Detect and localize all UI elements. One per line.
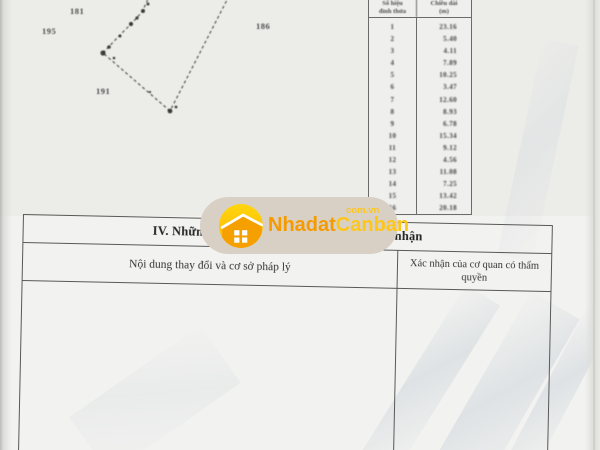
edge-length-value: 15.34 [439,130,457,142]
vertex-number: 9 [391,118,395,130]
vertex-number: 1 [391,21,395,33]
edge-length-value: 12.60 [439,94,457,106]
edge-length-value: 10.25 [439,69,457,81]
authority-confirmation-header: Xác nhận của cơ quan có thẩm quyền [409,257,540,286]
edge-length-value: 9.12 [443,142,457,154]
vertex-number: 8 [391,106,395,118]
cadastral-parcel-sketch: 181195191186 [30,0,290,130]
edge-length-value: 20.18 [439,202,457,214]
brand-part-canban: Canban [336,214,409,236]
vertex-number: 5 [391,69,395,81]
authority-confirmation-header-cell: Xác nhận của cơ quan có thẩm quyền [398,251,552,291]
vertex-number: 15 [389,190,397,202]
vertex-number: 4 [391,57,395,69]
scanned-document-page: 181195191186 Số hiệu đỉnh thửa Chiều dài… [0,0,600,450]
vertex-header-line1: Số hiệu [382,0,402,8]
adjacent-parcel-label: 195 [42,26,56,36]
change-content-header: Nội dung thay đổi và cơ sở pháp lý [129,258,291,273]
vertex-number: 6 [391,81,395,93]
edge-length-value: 11.08 [440,166,457,178]
adjacent-parcel-label: 191 [96,86,110,96]
watermark-brand-text: NhadatCanban [268,214,409,237]
nhadatcanban-watermark: com.vn NhadatCanban [200,197,398,254]
edge-length-value: 4.11 [444,45,457,57]
adjacent-parcel-label: 181 [70,6,84,16]
vertex-number: 12 [389,154,397,166]
parcel-outline-drawing [30,0,290,130]
scan-edge-left [0,0,12,450]
vertex-number: 10 [389,130,397,142]
edge-length-value: 7.89 [443,57,457,69]
scan-edge-right-line [593,0,595,450]
edge-length-value: 8.93 [443,106,457,118]
edge-length-value: 6.78 [443,118,457,130]
coordinates-table-body: 12345678910111213141516 23.165.404.117.8… [369,18,471,215]
vertex-header-line2: đỉnh thửa [379,8,406,16]
vertex-number: 14 [389,178,397,190]
vertex-number: 3 [391,45,395,57]
edge-length-value: 3.47 [443,81,457,93]
change-content-empty-cell [19,281,398,450]
authority-confirmation-empty-cell [394,289,551,450]
vertex-number: 2 [391,33,395,45]
length-header-line2: (m) [439,8,449,16]
brand-part-nhadat: Nhadat [268,214,336,236]
length-header-line1: Chiều dài [431,0,458,8]
coordinates-table-header: Số hiệu đỉnh thửa Chiều dài (m) [369,0,471,18]
edge-length-value: 23.16 [439,21,457,33]
edge-length-header: Chiều dài (m) [417,0,471,17]
house-logo-icon [218,203,264,249]
vertex-number: 11 [389,142,396,154]
vertex-coordinates-table: Số hiệu đỉnh thửa Chiều dài (m) 12345678… [368,0,472,215]
vertex-number-column: 12345678910111213141516 [369,18,417,215]
edge-length-column: 23.165.404.117.8910.253.4712.608.936.781… [417,18,471,215]
edge-length-value: 5.40 [443,33,457,45]
edge-length-value: 13.42 [439,190,457,202]
adjacent-parcel-label: 186 [256,21,270,31]
vertex-number-header: Số hiệu đỉnh thửa [369,0,417,17]
edge-length-value: 4.56 [443,154,457,166]
section-4-empty-body [19,281,551,450]
vertex-number: 13 [389,166,397,178]
scan-edge-right [585,0,600,450]
vertex-number: 7 [391,94,395,106]
edge-length-value: 7.25 [443,178,457,190]
